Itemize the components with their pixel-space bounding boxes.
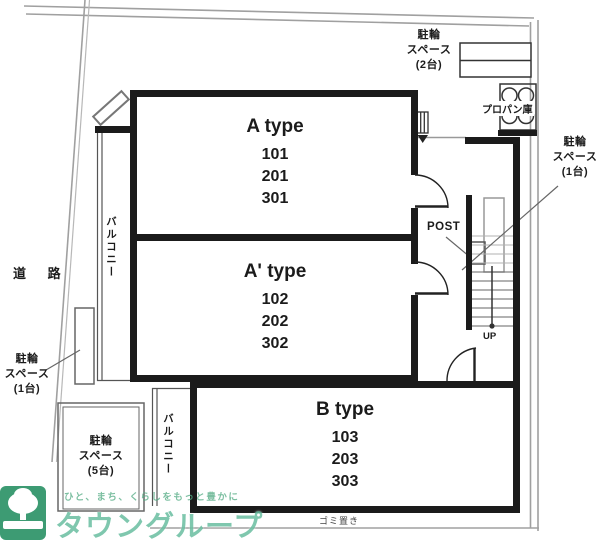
unit-b: B type 103 203 303	[285, 400, 405, 493]
propane-label: プロパン庫	[481, 101, 534, 116]
unit-b-numbers: 103 203 303	[285, 427, 405, 493]
watermark-slogan: ひと、まち、くらしをもっと豊かに	[64, 489, 239, 503]
entrance-marker	[417, 112, 428, 143]
stair-direction-dot	[489, 323, 494, 328]
staircase	[472, 236, 513, 329]
unit-a: A type 101 201 301	[215, 117, 335, 210]
bike-space-1-right-rect	[484, 198, 504, 272]
door-arc-a	[415, 175, 448, 208]
bike-space-2-rect	[460, 43, 531, 77]
door-arc-a2	[415, 262, 448, 295]
bike-space-5-label: 駐輪 スペース (5台)	[59, 434, 143, 479]
gate-marker	[93, 91, 129, 125]
balcony-label-a: バルコニー	[104, 216, 119, 296]
road-label: 道 路	[13, 263, 70, 282]
unit-b-title: B type	[285, 400, 405, 420]
balcony-label-b: バルコニー	[161, 413, 176, 491]
door-arc-b	[447, 348, 476, 381]
bike-space-2-label: 駐輪 スペース (2台)	[399, 28, 459, 73]
bike-space-1-left-rect	[75, 308, 94, 384]
site-plan: 道 路 A type 101 201 301 A' type 102 202 3…	[0, 0, 600, 540]
boundary-note: ゴミ置き	[319, 514, 359, 527]
watermark-brand: タウングループ	[55, 503, 263, 540]
up-label: UP	[483, 331, 496, 342]
bike-space-1-left-label: 駐輪 スペース (1台)	[0, 352, 56, 397]
unit-a-numbers: 101 201 301	[215, 144, 335, 210]
unit-a-prime-numbers: 102 202 302	[215, 289, 335, 355]
unit-a-prime-title: A' type	[215, 262, 335, 282]
unit-a-title: A type	[215, 117, 335, 137]
realtor-logo-icon	[0, 486, 46, 540]
unit-a-prime: A' type 102 202 302	[215, 262, 335, 355]
post-label: POST	[427, 221, 460, 233]
bike-space-1-right-label: 駐輪 スペース (1台)	[547, 135, 600, 180]
